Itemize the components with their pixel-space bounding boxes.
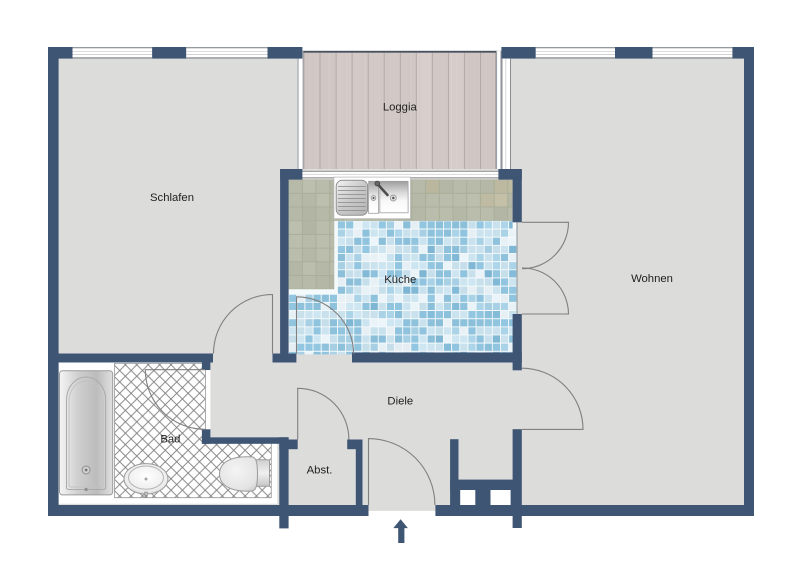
- svg-text:Schlafen: Schlafen: [150, 192, 194, 204]
- svg-text:Wohnen: Wohnen: [631, 273, 673, 285]
- svg-text:Abst.: Abst.: [307, 465, 333, 477]
- svg-text:Loggia: Loggia: [383, 101, 418, 113]
- svg-text:Diele: Diele: [387, 396, 413, 408]
- svg-text:Küche: Küche: [384, 274, 416, 286]
- svg-text:Bad: Bad: [160, 434, 180, 446]
